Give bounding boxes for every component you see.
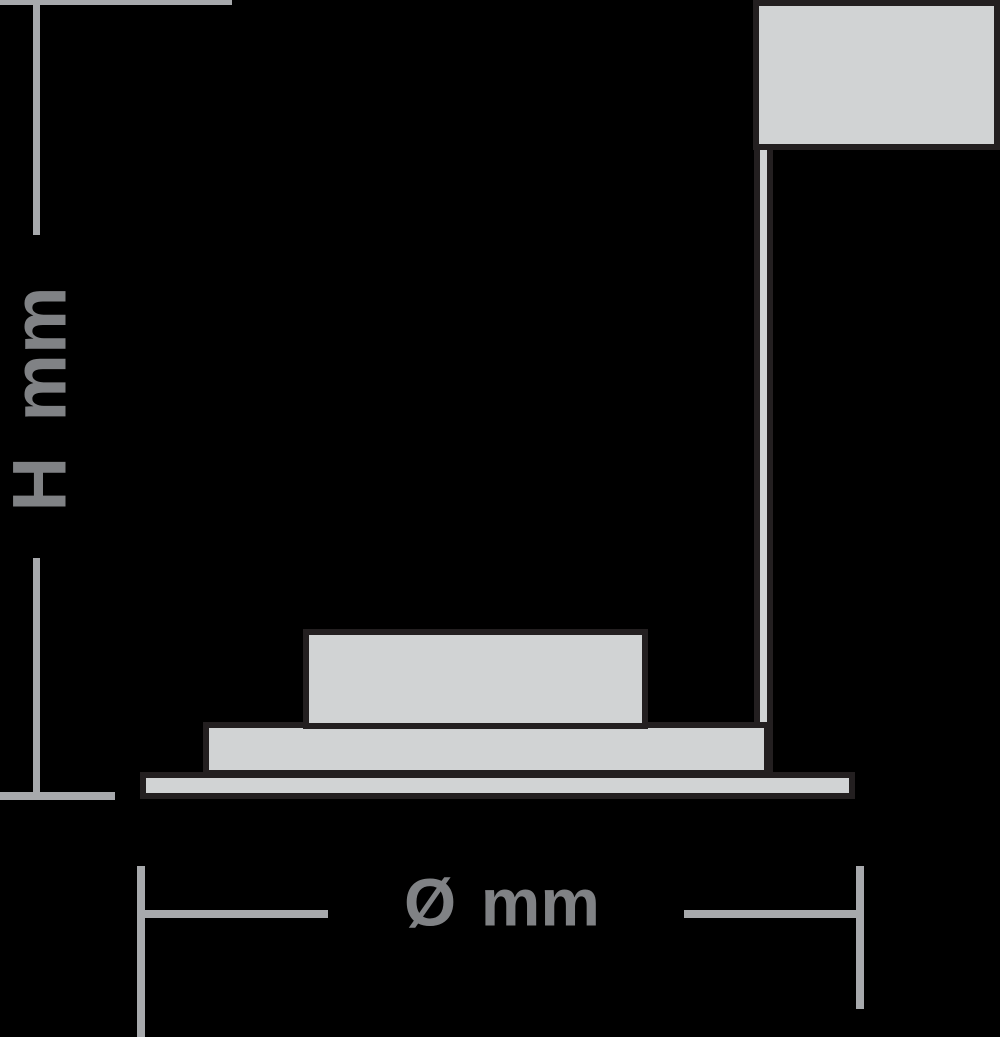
diameter-dimension-line-left	[140, 910, 328, 918]
suspension-stem	[757, 145, 770, 773]
housing-step	[206, 725, 767, 773]
driver-box	[756, 3, 997, 147]
trim-flange	[143, 775, 852, 796]
height-dimension: H mm	[0, 0, 232, 800]
fixture-profile	[143, 3, 997, 796]
diameter-dimension-line-right	[684, 910, 860, 918]
lamp-body	[306, 632, 645, 726]
diameter-extension-tick-left	[137, 866, 145, 1037]
diameter-dimension-label: Ø mm	[404, 866, 600, 941]
dimension-diagram: H mm Ø mm	[0, 0, 1000, 1037]
diameter-dimension: Ø mm	[137, 866, 864, 1037]
height-dimension-line-upper	[33, 0, 40, 235]
diameter-extension-tick-right	[856, 866, 864, 1009]
height-extension-tick-bottom	[0, 792, 115, 800]
height-dimension-line-lower	[33, 558, 40, 799]
height-dimension-label: H mm	[0, 286, 83, 511]
